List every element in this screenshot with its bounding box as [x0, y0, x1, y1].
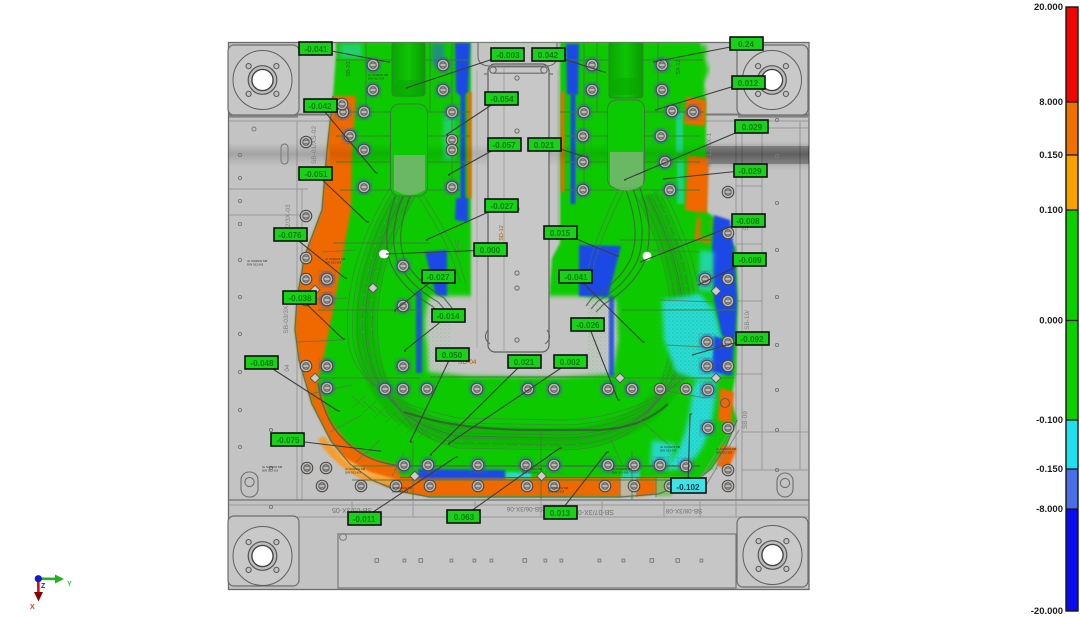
svg-text:-0.008: -0.008	[736, 217, 760, 226]
svg-text:X: X	[30, 604, 35, 611]
svg-text:DIN 912-8.8: DIN 912-8.8	[262, 468, 279, 472]
svg-text:-0.075: -0.075	[276, 436, 300, 445]
svg-text:SB-09: SB-09	[742, 411, 749, 429]
svg-text:0.021: 0.021	[514, 358, 535, 367]
svg-text:SB-10/: SB-10/	[744, 310, 751, 330]
svg-text:DIN 912-8.8: DIN 912-8.8	[345, 470, 362, 474]
svg-text:8.000: 8.000	[1039, 97, 1063, 108]
svg-text:0.029: 0.029	[742, 123, 763, 132]
svg-text:-0.048: -0.048	[250, 359, 274, 368]
svg-text:SB-07/3X-07: SB-07/3X-07	[574, 508, 614, 515]
svg-text:0.000: 0.000	[1039, 316, 1063, 327]
svg-text:-0.042: -0.042	[308, 102, 332, 111]
svg-text:04: 04	[284, 364, 291, 372]
svg-text:-0.038: -0.038	[288, 294, 312, 303]
svg-text:-0.051: -0.051	[304, 170, 328, 179]
svg-text:SB-06/3X-06: SB-06/3X-06	[506, 505, 543, 512]
svg-text:DIN 912-8.8: DIN 912-8.8	[716, 450, 733, 454]
svg-text:-8.000: -8.000	[1036, 504, 1063, 515]
svg-text:-0.054: -0.054	[490, 95, 514, 104]
svg-text:-0.027: -0.027	[490, 202, 514, 211]
svg-text:-0.076: -0.076	[278, 231, 302, 240]
svg-text:SX-12: SX-12	[676, 59, 682, 74]
svg-text:0.150: 0.150	[1039, 150, 1063, 161]
svg-text:0.042: 0.042	[538, 51, 559, 60]
svg-text:SB-08/3X-08: SB-08/3X-08	[665, 507, 702, 514]
svg-text:0.050: 0.050	[442, 351, 463, 360]
svg-text:SB-01: SB-01	[346, 61, 352, 76]
svg-text:DIN 912-8.8: DIN 912-8.8	[660, 448, 677, 452]
svg-text:DIN 912-8.8: DIN 912-8.8	[548, 489, 565, 493]
svg-text:SB-01/XS-02: SB-01/XS-02	[311, 126, 318, 164]
svg-text:-0.092: -0.092	[740, 335, 764, 344]
svg-text:DIN 912-8.8: DIN 912-8.8	[368, 76, 385, 80]
svg-text:0.24: 0.24	[738, 40, 754, 49]
svg-text:0.002: 0.002	[560, 358, 581, 367]
svg-text:Z: Z	[41, 583, 46, 590]
svg-text:SB-12/SX-1: SB-12/SX-1	[706, 132, 713, 167]
svg-text:0.100: 0.100	[1039, 205, 1063, 216]
svg-text:-0.029: -0.029	[738, 167, 762, 176]
svg-text:-0.102: -0.102	[676, 483, 700, 492]
svg-text:Y: Y	[67, 581, 72, 588]
svg-text:-0.150: -0.150	[1036, 464, 1063, 475]
svg-text:-0.089: -0.089	[738, 256, 762, 265]
svg-text:-0.027: -0.027	[426, 273, 450, 282]
svg-text:-0.057: -0.057	[492, 141, 516, 150]
svg-text:-0.014: -0.014	[436, 312, 460, 321]
svg-text:0.021: 0.021	[534, 141, 555, 150]
svg-text:0.063: 0.063	[454, 513, 475, 522]
svg-text:DIN 912-8.8: DIN 912-8.8	[247, 262, 264, 266]
svg-text:0.015: 0.015	[550, 229, 571, 238]
svg-text:-0.011: -0.011	[353, 515, 376, 524]
svg-text:-20.000: -20.000	[1031, 606, 1063, 617]
svg-text:-0.041: -0.041	[304, 45, 328, 54]
svg-text:DIN 912-8.8: DIN 912-8.8	[612, 470, 629, 474]
svg-text:20.000: 20.000	[1034, 2, 1063, 13]
svg-text:SD-02: SD-02	[455, 239, 461, 255]
svg-text:0.012: 0.012	[738, 79, 759, 88]
svg-text:0.000: 0.000	[480, 246, 501, 255]
svg-text:0.013: 0.013	[550, 509, 571, 518]
svg-text:-0.003: -0.003	[496, 51, 520, 60]
svg-text:-0.026: -0.026	[576, 321, 600, 330]
svg-text:-0.100: -0.100	[1036, 415, 1063, 426]
svg-text:-0.041: -0.041	[564, 273, 588, 282]
svg-text:SD-12: SD-12	[499, 225, 505, 241]
